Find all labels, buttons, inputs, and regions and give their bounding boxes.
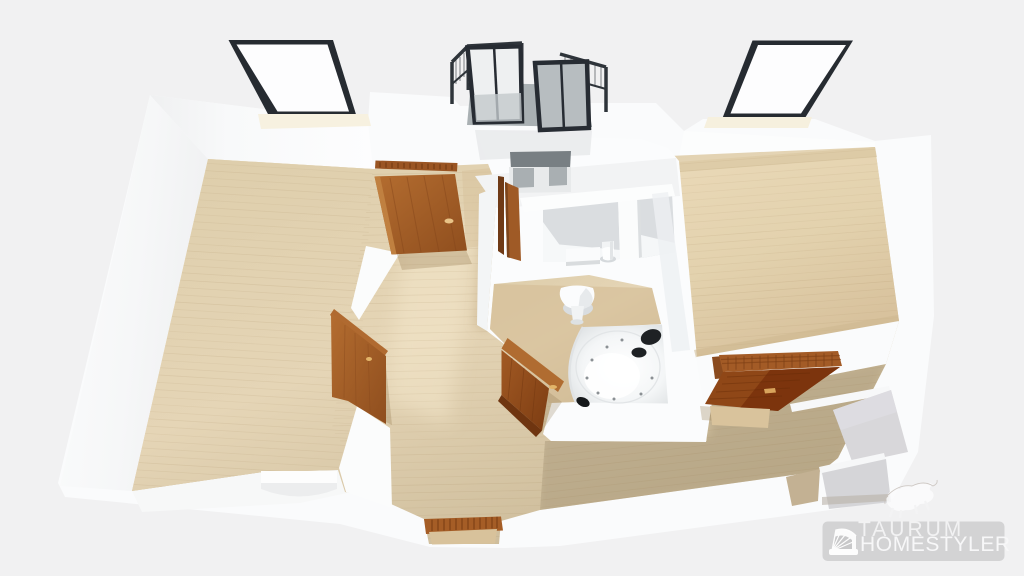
svg-text:HOMESTYLER: HOMESTYLER bbox=[860, 533, 1011, 556]
